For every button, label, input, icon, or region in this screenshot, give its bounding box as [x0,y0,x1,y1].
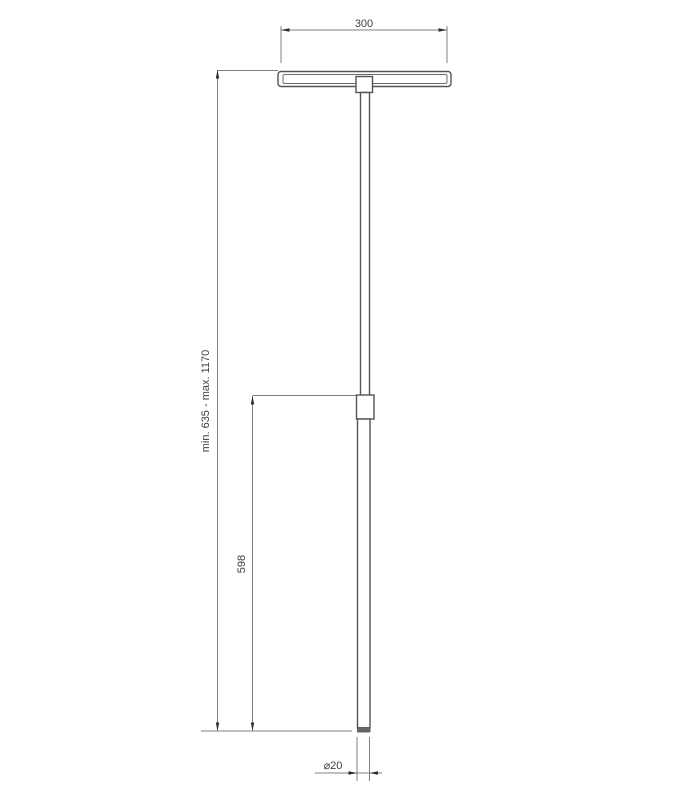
arrowhead-overall-bottom [216,723,219,732]
lower-pole-tube [358,419,371,728]
arrowhead-diameter-right [370,771,379,774]
pole-end-cap [358,728,371,733]
dimension-lines [201,26,447,781]
arrowheads [216,28,447,774]
head-pole-connector [356,77,373,93]
height-adjust-collar [357,395,375,419]
lamp-object [278,72,451,733]
arrowhead-overall-top [216,70,219,79]
drawing-canvas: 300 min. 635 - max. 1170 598 ⌀20 [0,0,700,800]
upper-pole-tube [361,93,370,396]
dim-label-overall-height: min. 635 - max. 1170 [200,350,212,453]
dimension-drawing: 300 min. 635 - max. 1170 598 ⌀20 [0,0,700,800]
arrowhead-lower-tube-top [251,396,254,405]
dim-label-head-width: 300 [355,18,373,30]
dim-label-diameter: ⌀20 [324,760,343,772]
arrowhead-lower-tube-bottom [251,723,254,732]
arrowhead-head-width-right [439,28,448,31]
dim-label-lower-tube: 598 [236,555,248,573]
arrowhead-diameter-left [349,771,358,774]
arrowhead-head-width-left [281,28,290,31]
